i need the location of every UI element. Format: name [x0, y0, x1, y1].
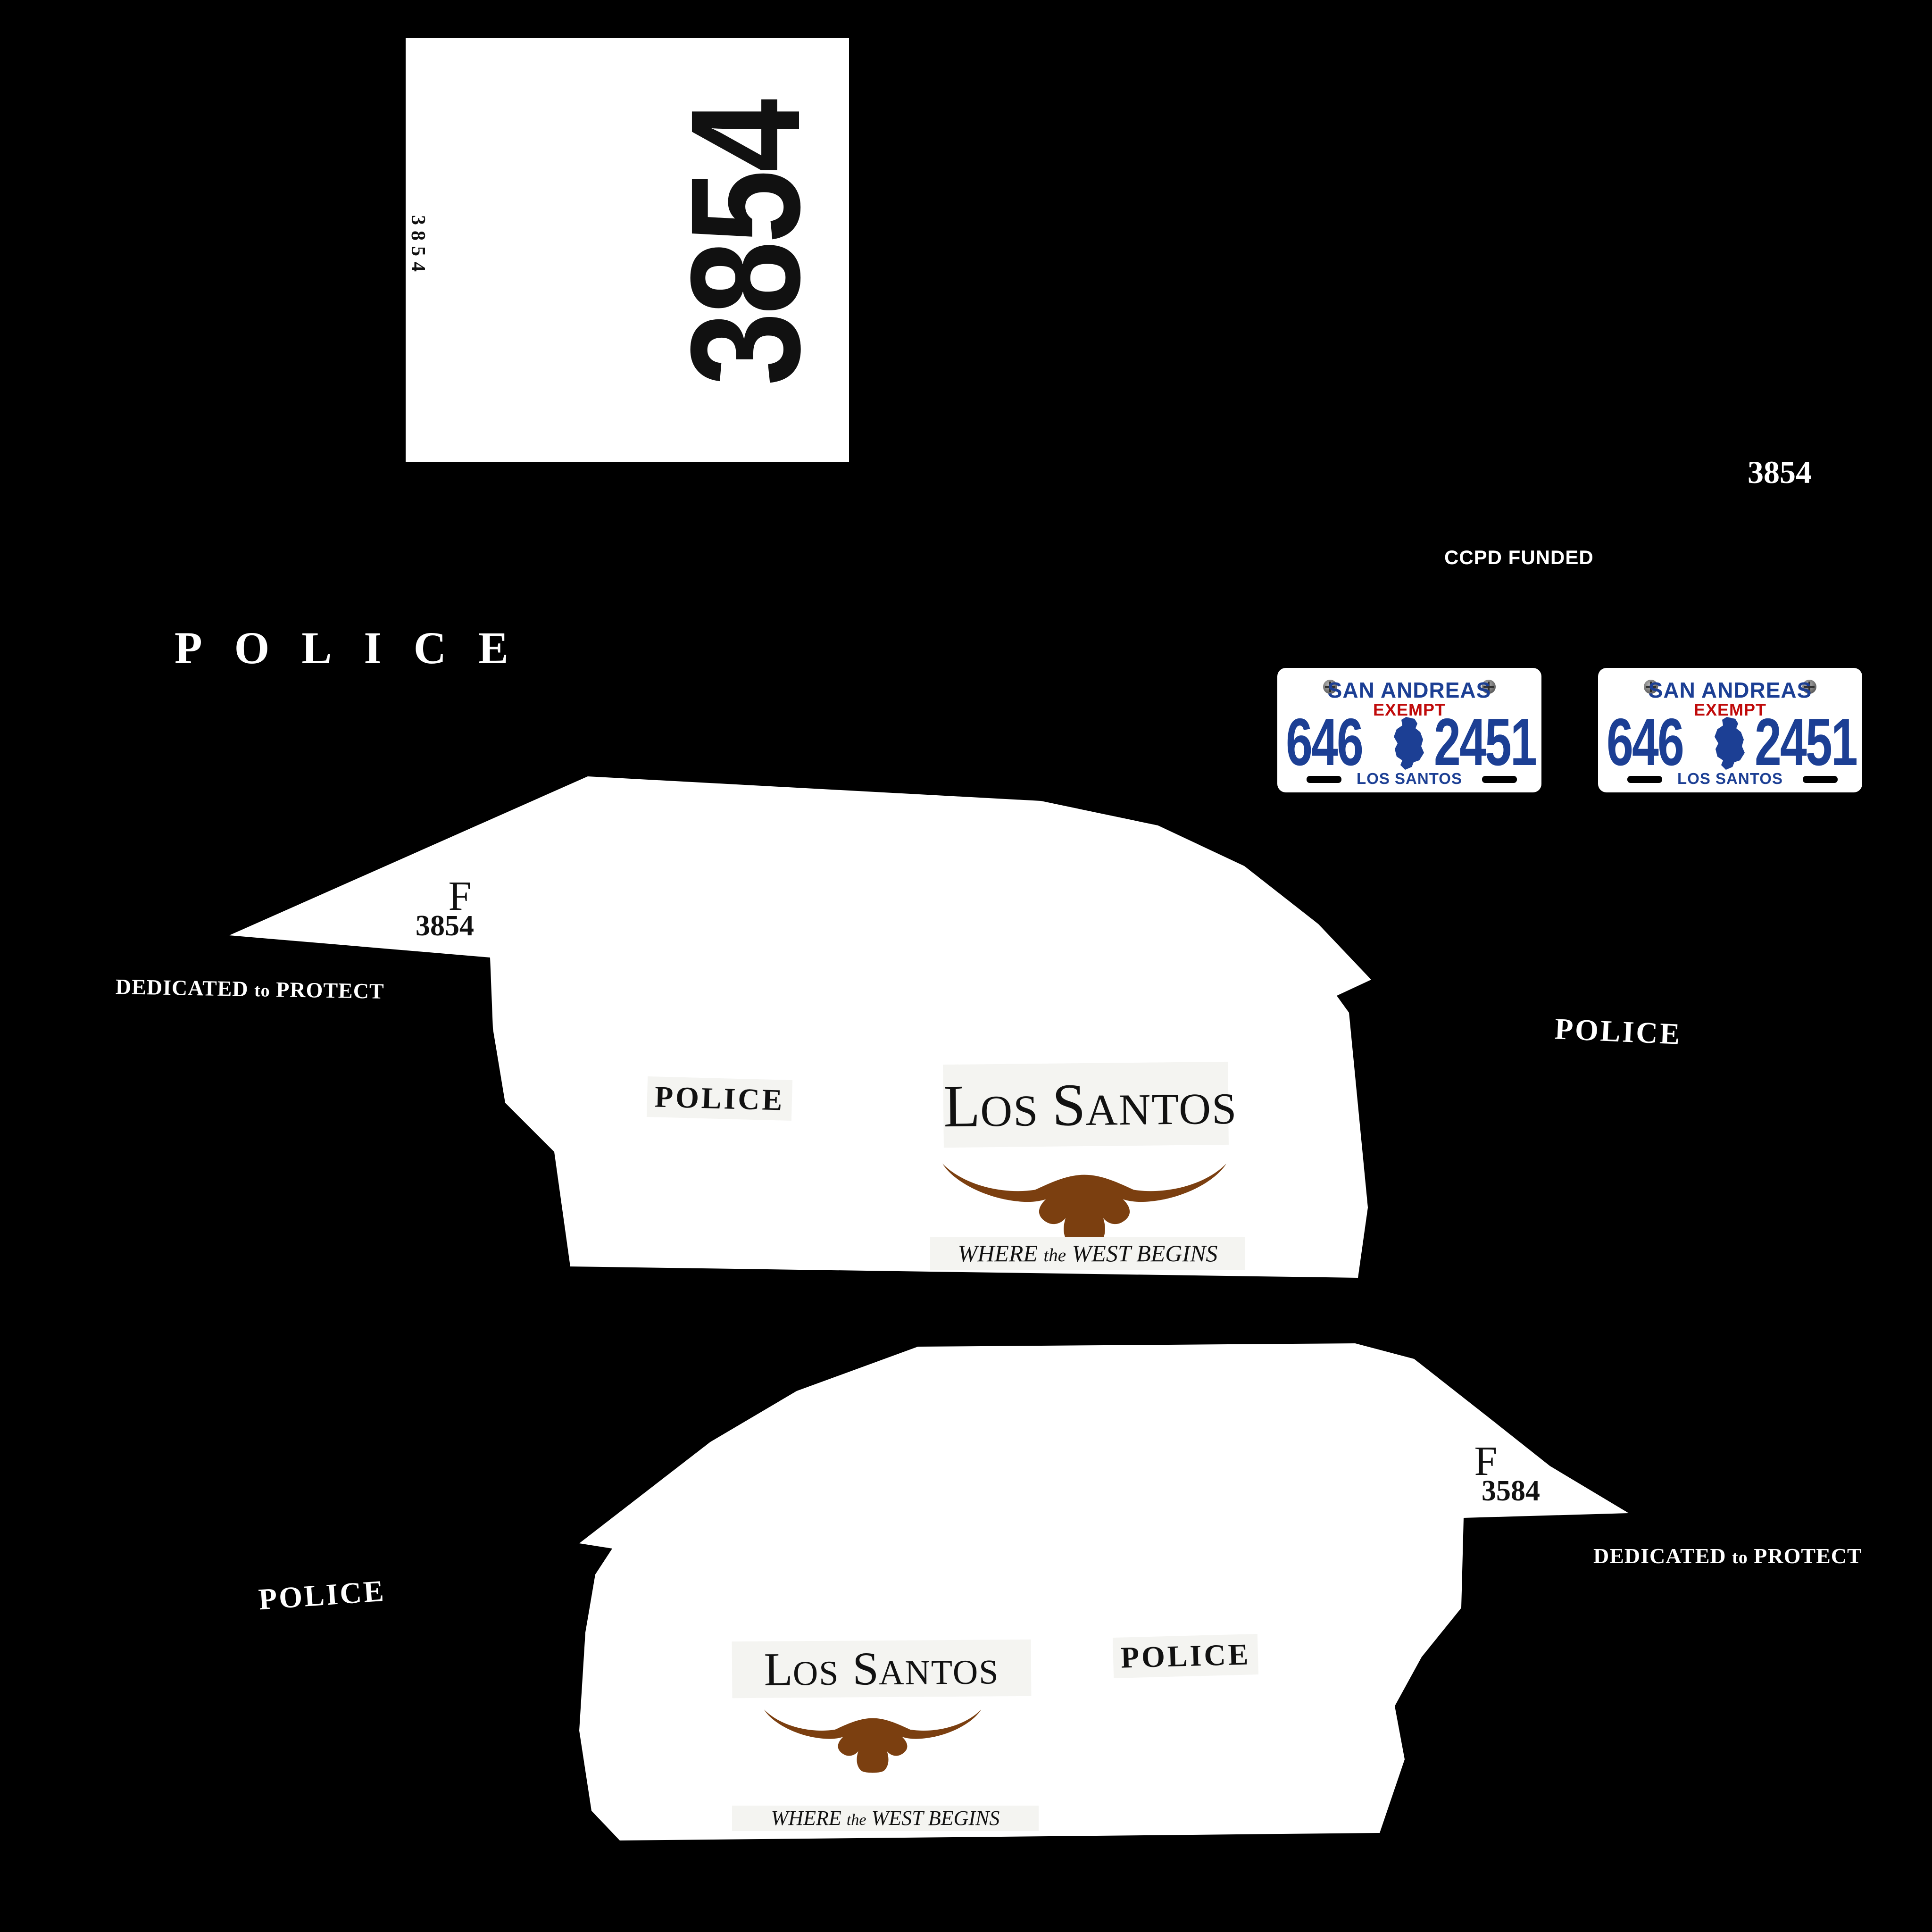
motto-word: DEDICATED — [116, 974, 249, 1001]
police-door-label-left-side: POLICE — [1113, 1634, 1259, 1678]
roof-unit-number-large: 3854 — [675, 99, 816, 388]
unit-number-white: 3854 — [1748, 454, 1812, 491]
motto-word: to — [254, 981, 270, 1001]
tagline-left-side: WHERE the WEST BEGINS — [732, 1806, 1039, 1831]
plate-slot — [1482, 776, 1517, 783]
livery-texture-sheet: { "document": { "title": "Los Santos Pol… — [0, 0, 1932, 1932]
logo-word-santos: SANTOS — [1052, 1117, 1238, 1127]
plate-number-left: 646 — [1286, 709, 1362, 775]
motto-word: PROTECT — [1754, 1544, 1862, 1568]
tagline-word: the — [847, 1811, 866, 1829]
plate-slot — [1307, 776, 1341, 783]
ccpd-funded-label: CCPD FUNDED — [1444, 546, 1594, 569]
plate-slot — [1803, 776, 1838, 783]
logo-word-santos: SANTOS — [853, 1677, 999, 1686]
plate-state-label: SAN ANDREAS — [1277, 677, 1541, 703]
plate-number-left: 646 — [1607, 709, 1683, 775]
san-andreas-map-icon — [1713, 716, 1748, 772]
plate-state-label: SAN ANDREAS — [1598, 677, 1862, 703]
los-santos-logo-left-side: LOSSANTOS — [732, 1640, 1032, 1698]
motto-word: DEDICATED — [1593, 1544, 1726, 1568]
dedicated-motto-right-side: DEDICATED to PROTECT — [116, 974, 385, 1004]
san-andreas-map-icon — [1392, 716, 1427, 772]
license-plate-1: SAN ANDREAS EXEMPT 646 2451 LOS SANTOS — [1277, 668, 1541, 792]
dedicated-motto-left-side: DEDICATED to PROTECT — [1593, 1543, 1862, 1568]
tagline-word: the — [1043, 1245, 1066, 1266]
motto-word: PROTECT — [276, 977, 384, 1003]
tagline-right-side: WHERE the WEST BEGINS — [930, 1237, 1245, 1270]
longhorn-icon — [939, 1147, 1230, 1249]
logo-word-los: LOS — [764, 1679, 840, 1687]
motto-word: to — [1732, 1548, 1748, 1567]
police-spaced-label: POLICE — [175, 622, 541, 674]
tagline-word: WHERE — [958, 1240, 1038, 1266]
longhorn-icon — [733, 1698, 1012, 1774]
los-santos-logo-right-side: LOSSANTOS — [943, 1062, 1229, 1148]
plate-slot — [1627, 776, 1662, 783]
license-plate-2: SAN ANDREAS EXEMPT 646 2451 LOS SANTOS — [1598, 668, 1862, 792]
plate-number-right: 2451 — [1434, 709, 1536, 775]
unit-number-right-side: 3854 — [405, 909, 485, 943]
police-door-label-right-side: POLICE — [647, 1076, 793, 1121]
tagline-word: WEST BEGINS — [872, 1807, 1000, 1830]
tagline-word: WHERE — [771, 1807, 841, 1830]
tagline-word: WEST BEGINS — [1072, 1240, 1218, 1266]
unit-number-left-side: 3584 — [1471, 1474, 1551, 1508]
police-rear-label-right-side: POLICE — [1554, 1011, 1682, 1052]
logo-word-los: LOS — [943, 1119, 1039, 1128]
plate-number-right: 2451 — [1755, 709, 1857, 775]
roof-unit-number-small: 3854 — [406, 194, 430, 298]
